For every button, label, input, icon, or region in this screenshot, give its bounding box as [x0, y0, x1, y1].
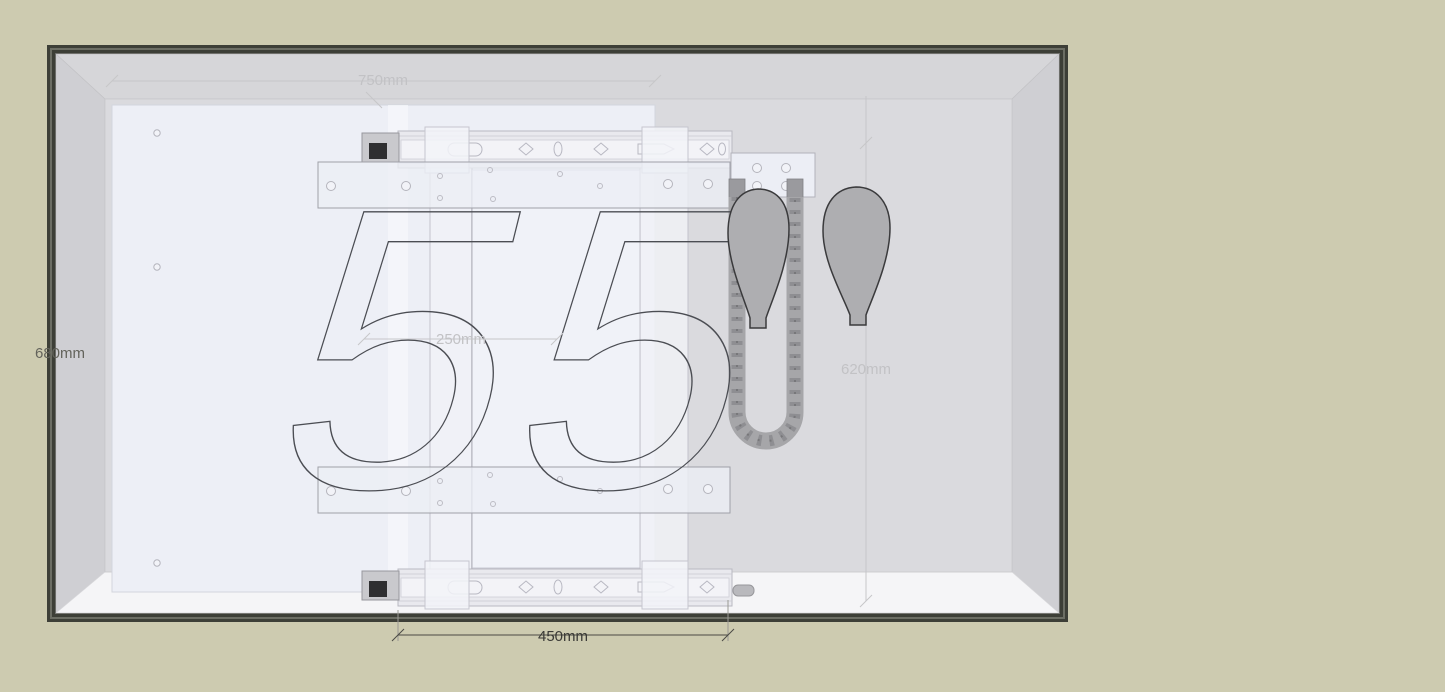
dim-label-450: 450mm [538, 628, 588, 645]
dimension-680: 680mm [35, 345, 85, 362]
bottom-rail-motor-block [369, 581, 387, 597]
tv-screw-hole [154, 264, 160, 270]
dim-label-680: 680mm [35, 345, 85, 362]
dim-label-750: 750mm [358, 72, 408, 89]
tv-screw-hole [154, 560, 160, 566]
dim-label-250: 250mm [436, 331, 486, 348]
cad-viewport: 620mm [0, 0, 1445, 692]
limit-switch-knob [733, 585, 754, 596]
dim-label-620: 620mm [841, 361, 891, 378]
wall-left [56, 54, 105, 613]
tv-screw-hole [154, 130, 160, 136]
wall-top [56, 54, 1059, 99]
wall-right [1012, 54, 1059, 613]
